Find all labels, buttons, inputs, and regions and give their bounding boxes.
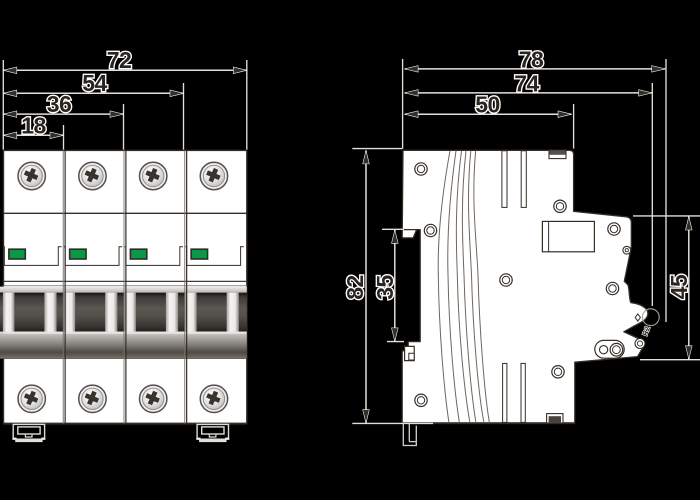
svg-text:45: 45: [666, 274, 692, 299]
svg-text:18: 18: [21, 113, 46, 139]
svg-text:72: 72: [107, 47, 132, 73]
svg-text:35: 35: [372, 275, 398, 300]
svg-text:74: 74: [514, 71, 539, 97]
svg-text:54: 54: [82, 70, 107, 96]
svg-text:78: 78: [519, 47, 544, 73]
svg-text:82: 82: [342, 275, 368, 300]
svg-text:50: 50: [475, 92, 500, 118]
svg-text:36: 36: [47, 91, 72, 117]
